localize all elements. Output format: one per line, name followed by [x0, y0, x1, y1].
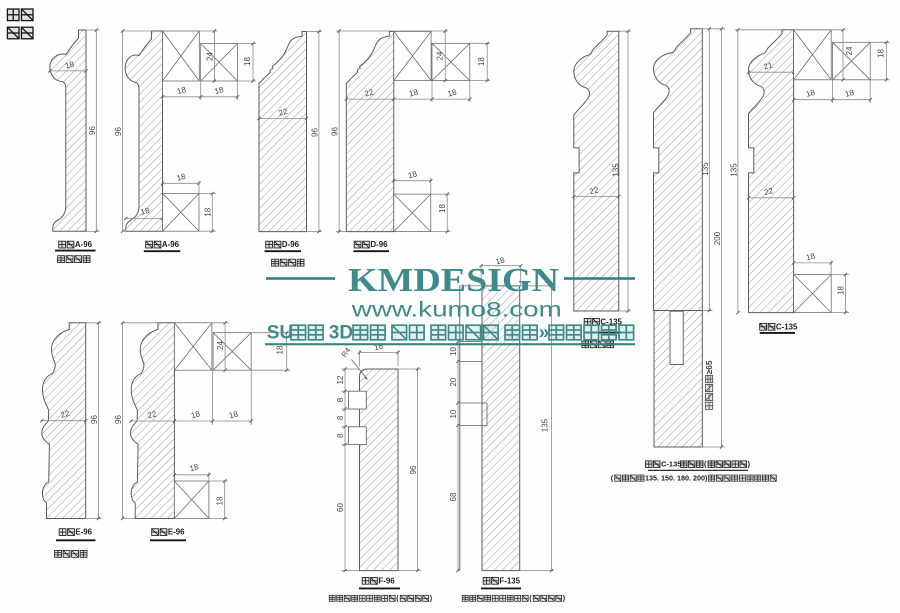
- svg-text:135. 150. 180. 200): 135. 150. 180. 200): [645, 473, 708, 482]
- svg-text:96: 96: [331, 127, 340, 136]
- svg-text:135: 135: [611, 163, 620, 177]
- svg-text:24: 24: [845, 46, 854, 55]
- svg-text:18: 18: [876, 49, 885, 58]
- svg-text:C-135: C-135: [776, 322, 798, 331]
- svg-text:): ): [430, 596, 432, 603]
- svg-text:10: 10: [449, 347, 458, 356]
- svg-text:F-135: F-135: [499, 576, 520, 585]
- svg-text:68: 68: [449, 492, 458, 501]
- svg-text:96: 96: [114, 415, 123, 424]
- svg-text:18: 18: [203, 207, 212, 216]
- svg-text:D-96: D-96: [282, 240, 300, 249]
- svg-text:8: 8: [336, 415, 345, 420]
- svg-text:135: 135: [701, 162, 710, 176]
- svg-text:18: 18: [438, 204, 447, 213]
- svg-text:8: 8: [336, 397, 345, 402]
- svg-text:96: 96: [90, 415, 99, 424]
- svg-text:www.kumo8.com: www.kumo8.com: [350, 299, 561, 322]
- svg-text:18: 18: [215, 496, 224, 505]
- svg-text:»: »: [539, 323, 550, 344]
- svg-text:A-96: A-96: [75, 240, 93, 249]
- svg-text:3D: 3D: [329, 323, 353, 344]
- svg-text:12: 12: [336, 375, 345, 384]
- svg-text:E-96: E-96: [75, 528, 92, 537]
- svg-text:SU: SU: [267, 323, 293, 344]
- svg-text:200: 200: [713, 231, 722, 245]
- svg-text:60: 60: [336, 503, 345, 512]
- svg-text:D-96: D-96: [370, 240, 388, 249]
- svg-text:): ): [563, 596, 565, 603]
- svg-text:24: 24: [216, 341, 225, 350]
- svg-text:F-96: F-96: [378, 576, 395, 585]
- svg-text:8: 8: [336, 433, 345, 438]
- svg-text:20: 20: [449, 377, 458, 386]
- svg-text:KMDESIGN: KMDESIGN: [348, 262, 559, 299]
- svg-text:96: 96: [311, 128, 320, 137]
- svg-text:96: 96: [114, 127, 123, 136]
- svg-text:24: 24: [205, 52, 214, 61]
- svg-text:96: 96: [88, 126, 97, 135]
- svg-text:24: 24: [435, 51, 444, 60]
- svg-text:18: 18: [275, 345, 284, 354]
- svg-text:C-135: C-135: [661, 460, 681, 469]
- svg-text:135: 135: [540, 418, 549, 432]
- svg-text:E-96: E-96: [168, 528, 185, 537]
- svg-text:96: 96: [409, 465, 418, 474]
- svg-text:10: 10: [449, 409, 458, 418]
- svg-text:18: 18: [837, 286, 846, 295]
- svg-text:≥65: ≥65: [704, 360, 714, 374]
- svg-text:18: 18: [243, 57, 252, 66]
- svg-text:A-96: A-96: [162, 240, 180, 249]
- svg-text:135: 135: [729, 163, 738, 177]
- svg-text:18: 18: [477, 57, 486, 66]
